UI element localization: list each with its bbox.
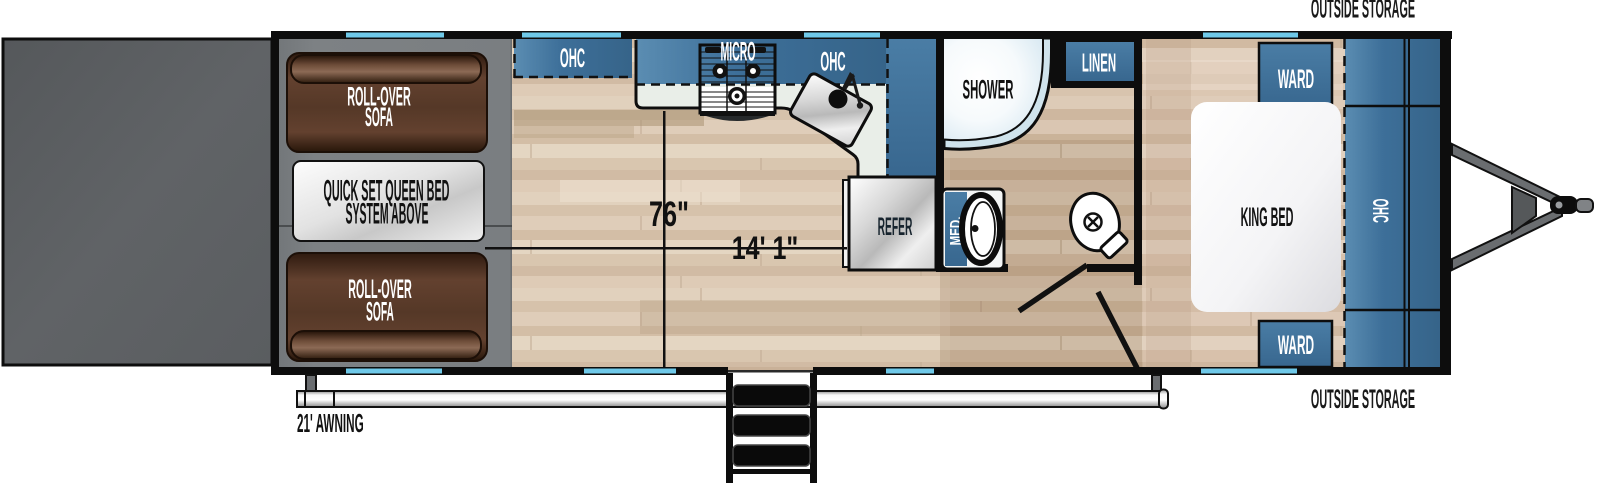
svg-text:OUTSIDE STORAGE: OUTSIDE STORAGE [1311,384,1415,414]
svg-text:OHC: OHC [1368,198,1393,223]
svg-text:MICRO: MICRO [720,37,755,67]
svg-text:WARD: WARD [1278,331,1314,361]
svg-text:76": 76" [649,195,689,234]
svg-text:KING BED: KING BED [1241,202,1294,232]
svg-text:REFER: REFER [878,214,913,241]
svg-text:SOFA: SOFA [365,104,393,133]
svg-text:SHOWER: SHOWER [963,75,1014,105]
svg-text:LINEN: LINEN [1082,49,1116,77]
svg-text:SOFA: SOFA [366,298,394,327]
svg-text:OHC: OHC [560,44,585,74]
svg-text:21' AWNING: 21' AWNING [297,410,364,438]
svg-text:SYSTEM ABOVE: SYSTEM ABOVE [345,197,428,230]
svg-text:WARD: WARD [1278,65,1314,95]
svg-text:OUTSIDE STORAGE: OUTSIDE STORAGE [1311,0,1415,24]
svg-text:OHC: OHC [820,47,845,77]
svg-text:14' 1": 14' 1" [732,231,799,267]
